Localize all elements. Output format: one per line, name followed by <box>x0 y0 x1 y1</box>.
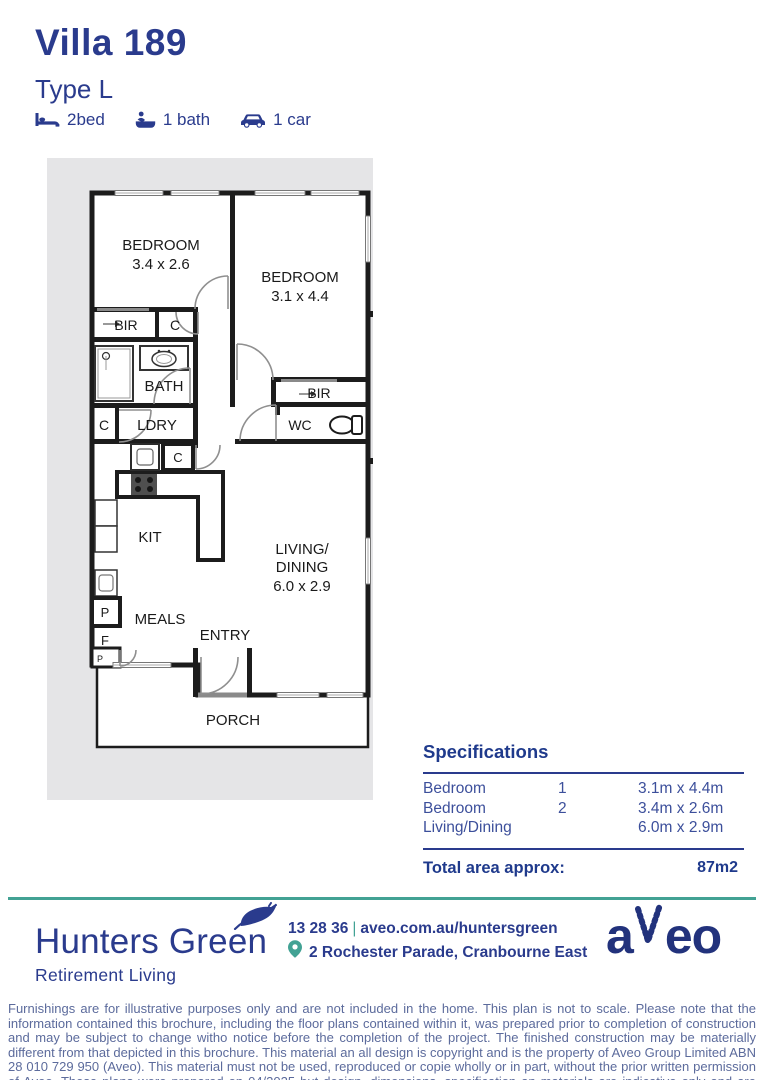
contact-block: 13 28 36|aveo.com.au/huntersgreen 2 Roch… <box>288 917 587 965</box>
room-label-ldry: LDRY <box>137 417 177 434</box>
brand-tagline: Retirement Living <box>35 965 295 986</box>
separator: | <box>348 920 360 937</box>
room-dims-bedroom1: 3.1 x 4.4 <box>271 288 329 305</box>
spec-number: 1 <box>558 779 638 799</box>
total-area-row: Total area approx: 87m2 <box>423 850 744 878</box>
room-label-porch: PORCH <box>206 712 260 729</box>
room-label-living1: LIVING/ <box>275 541 329 558</box>
spec-label: Bedroom <box>423 799 558 819</box>
location-pin-icon <box>288 940 302 965</box>
address-text: 2 Rochester Parade, Cranbourne East <box>309 941 587 964</box>
room-label-p1: P <box>101 605 110 620</box>
room-label-p2: P <box>97 654 103 664</box>
room-label-f: F <box>101 633 109 648</box>
room-label-bedroom2: BEDROOM <box>122 237 200 254</box>
feature-baths-label: 1 bath <box>163 110 210 130</box>
brochure-page: Villa 189 Type L 2bed 1 bat <box>0 0 764 1080</box>
room-label-c3: C <box>173 450 182 465</box>
room-label-bir1: BIR <box>114 317 137 333</box>
floorplan-svg: BEDROOM 3.4 x 2.6 BEDROOM 3.1 x 4.4 BIR … <box>47 158 373 800</box>
table-row: Living/Dining 6.0m x 2.9m <box>423 818 744 838</box>
aveo-logo: a eo <box>606 903 721 964</box>
car-icon <box>240 113 266 128</box>
floorplan-panel: BEDROOM 3.4 x 2.6 BEDROOM 3.1 x 4.4 BIR … <box>47 158 373 800</box>
contact-line1: 13 28 36|aveo.com.au/huntersgreen <box>288 917 587 940</box>
feature-cars: 1 car <box>240 110 311 130</box>
room-label-meals: MEALS <box>135 611 186 628</box>
specifications-section: Specifications Bedroom 1 3.1m x 4.4m Bed… <box>423 741 744 878</box>
bath-icon <box>135 111 156 129</box>
page-title: Villa 189 <box>35 22 187 64</box>
room-label-kit: KIT <box>138 529 161 546</box>
spec-dimensions: 3.1m x 4.4m <box>638 779 744 799</box>
room-label-bath: BATH <box>145 378 184 395</box>
villa-type: Type L <box>35 74 113 105</box>
room-label-bir2: BIR <box>307 385 330 401</box>
room-label-living2: DINING <box>276 559 329 576</box>
room-dims-living: 6.0 x 2.9 <box>273 578 331 595</box>
room-dims-bedroom2: 3.4 x 2.6 <box>132 256 190 273</box>
specs-rows: Bedroom 1 3.1m x 4.4m Bedroom 2 3.4m x 2… <box>423 774 744 848</box>
disclaimer-text: Furnishings are for illustrative purpose… <box>8 1002 756 1080</box>
spec-dimensions: 6.0m x 2.9m <box>638 818 744 838</box>
room-label-wc: WC <box>288 417 311 433</box>
leaf-icon <box>233 902 279 935</box>
hunters-green-logo: Hunters Green Retirement Living <box>35 906 295 986</box>
spec-label: Bedroom <box>423 779 558 799</box>
table-row: Bedroom 2 3.4m x 2.6m <box>423 799 744 819</box>
feature-summary: 2bed 1 bath 1 car <box>35 110 311 130</box>
footer-divider <box>8 897 756 900</box>
room-label-bedroom1: BEDROOM <box>261 269 339 286</box>
feature-beds: 2bed <box>35 110 105 130</box>
aveo-leaf-v-icon <box>633 903 665 964</box>
spec-dimensions: 3.4m x 2.6m <box>638 799 744 819</box>
spec-number: 2 <box>558 799 638 819</box>
contact-line2: 2 Rochester Parade, Cranbourne East <box>288 940 587 965</box>
table-row: Bedroom 1 3.1m x 4.4m <box>423 779 744 799</box>
aveo-logo-eo: eo <box>665 908 721 964</box>
spec-label: Living/Dining <box>423 818 558 838</box>
room-label-c1: C <box>170 317 180 333</box>
specifications-heading: Specifications <box>423 741 744 763</box>
feature-cars-label: 1 car <box>273 110 311 130</box>
room-label-entry: ENTRY <box>200 627 251 644</box>
feature-baths: 1 bath <box>135 110 210 130</box>
total-area-value: 87m2 <box>697 859 738 878</box>
bed-icon <box>35 112 60 129</box>
phone-number: 13 28 36 <box>288 920 348 937</box>
room-label-c2: C <box>99 417 109 433</box>
website-link[interactable]: aveo.com.au/huntersgreen <box>360 920 557 937</box>
feature-beds-label: 2bed <box>67 110 105 130</box>
total-area-label: Total area approx: <box>423 859 565 878</box>
aveo-logo-a: a <box>606 908 633 964</box>
spec-number <box>558 818 638 838</box>
